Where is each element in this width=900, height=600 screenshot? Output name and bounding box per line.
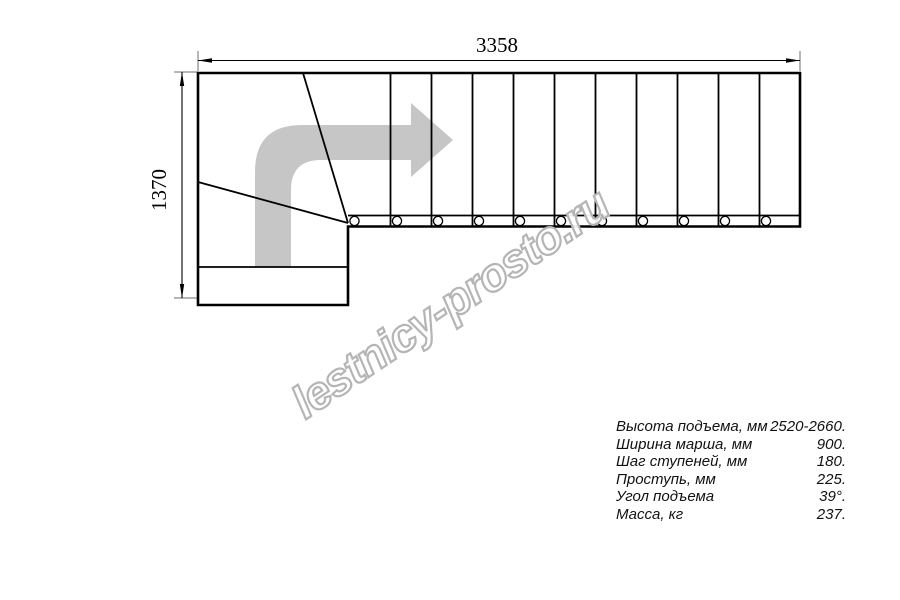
spec-value: 237. <box>817 506 846 524</box>
baluster-circle <box>350 216 359 225</box>
spec-row: Шаг ступеней, мм 180. <box>616 453 846 471</box>
dimension-width-label: 3358 <box>476 33 518 57</box>
spec-value: 225. <box>817 471 846 489</box>
baluster-circles <box>350 216 771 225</box>
spec-label: Масса, кг <box>616 506 683 524</box>
spec-row: Высота подъема, мм 2520-2660. <box>616 418 846 436</box>
dim-arrow-right-icon <box>786 58 800 63</box>
direction-arrow <box>255 103 453 267</box>
dim-arrow-left-icon <box>198 58 212 63</box>
spec-row: Проступь, мм 225. <box>616 471 846 489</box>
dimension-height-label: 1370 <box>147 169 171 211</box>
specs-table: Высота подъема, мм 2520-2660. Ширина мар… <box>616 418 846 524</box>
baluster-circle <box>556 216 565 225</box>
spec-row: Ширина марша, мм 900. <box>616 436 846 454</box>
spec-value: 900. <box>817 436 846 454</box>
spec-row: Угол подъема 39°. <box>616 488 846 506</box>
spec-value: 39°. <box>819 488 846 506</box>
spec-label: Шаг ступеней, мм <box>616 453 747 471</box>
spec-value: 180. <box>817 453 846 471</box>
dim-arrow-top-icon <box>180 72 184 86</box>
stair-plan-canvas: 3358 1370 <box>0 0 900 600</box>
baluster-circle <box>761 216 770 225</box>
baluster-circle <box>679 216 688 225</box>
baluster-circle <box>433 216 442 225</box>
baluster-circle <box>474 216 483 225</box>
baluster-circle <box>392 216 401 225</box>
spec-label: Проступь, мм <box>616 471 716 489</box>
spec-row: Масса, кг 237. <box>616 506 846 524</box>
spec-value: 2520-2660. <box>770 418 846 436</box>
baluster-circle <box>720 216 729 225</box>
spec-label: Угол подъема <box>616 488 714 506</box>
spec-label: Ширина марша, мм <box>616 436 752 454</box>
baluster-circle <box>638 216 647 225</box>
dim-arrow-bottom-icon <box>180 284 184 298</box>
baluster-circle <box>515 216 524 225</box>
spec-label: Высота подъема, мм <box>616 418 768 436</box>
baluster-circle <box>597 216 606 225</box>
